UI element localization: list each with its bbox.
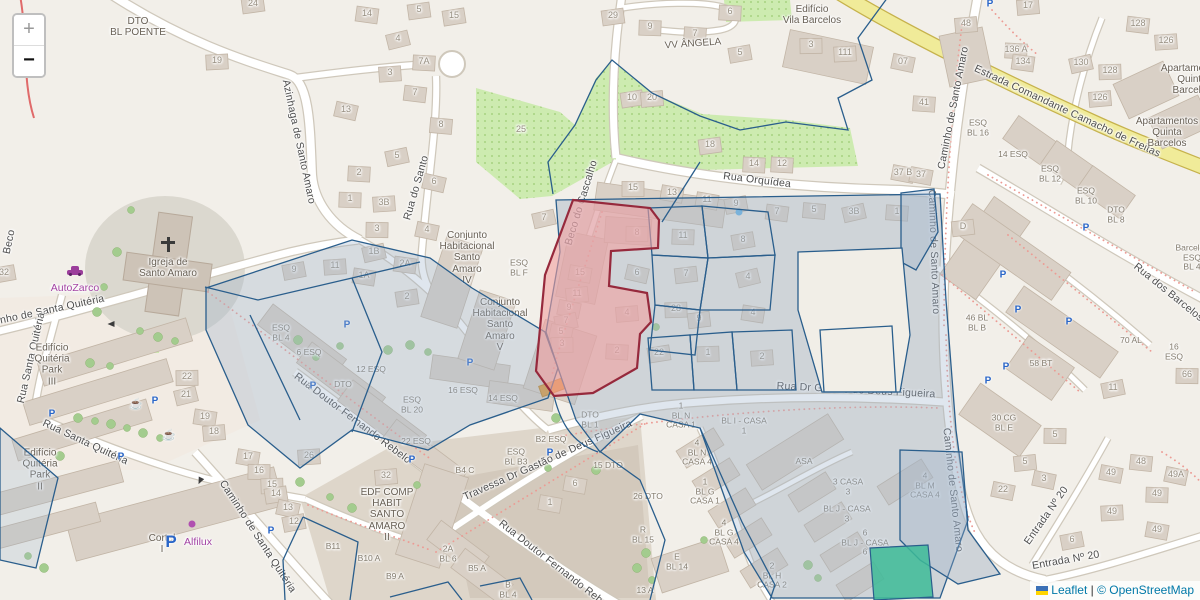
housenumber-label: 3 — [387, 67, 392, 77]
parking-icon: P — [165, 532, 176, 552]
place-label: B10 A — [358, 554, 381, 564]
parking-icon: P — [1066, 317, 1073, 328]
zoom-out-button[interactable]: − — [14, 46, 44, 76]
parking-icon: P — [1003, 362, 1010, 373]
poi-label: Alfilux — [184, 537, 212, 549]
place-label: Edifício Quitéria Park III — [34, 343, 69, 388]
housenumber-label: 6 — [634, 267, 639, 277]
place-label: ESQ BL B3 — [505, 447, 528, 466]
housenumber-label: 5 — [1052, 429, 1057, 439]
housenumber-label: 25 — [516, 124, 526, 134]
street-label: Rua do Santo — [402, 154, 432, 221]
parking-icon: P — [409, 455, 416, 466]
car-icon — [67, 266, 83, 276]
place-label: ESQ BL F — [510, 258, 528, 277]
street-label: Rua Orquídea — [722, 171, 791, 191]
housenumber-label: 41 — [919, 97, 929, 107]
place-label: 16 ESQ — [1161, 342, 1187, 361]
place-label: ESQ BL 4 — [272, 323, 290, 342]
street-label: Estrada Comandante Camacho de Freitas — [972, 64, 1162, 161]
housenumber-label: 22 — [654, 347, 664, 357]
housenumber-label: 66 — [1182, 369, 1192, 379]
place-label: B9 A — [386, 572, 404, 582]
housenumber-label: 17 — [243, 451, 253, 461]
place-label: 15 DTO — [593, 461, 623, 471]
housenumber-label: 3 — [808, 39, 813, 49]
place-label: 26 DTO — [633, 492, 663, 502]
housenumber-label: 24 — [248, 0, 258, 8]
place-label: 13 A — [636, 586, 653, 596]
place-label: DTO BL 8 — [1107, 205, 1125, 224]
parking-icon: P — [268, 526, 275, 537]
housenumber-label: 130 — [1073, 57, 1088, 67]
cafe-icon: ☕ — [129, 398, 143, 411]
parking-icon: P — [118, 452, 125, 463]
osm-link[interactable]: © OpenStreetMap — [1097, 583, 1194, 597]
place-label: EDF COMP HABIT SANTO AMARO II — [361, 487, 414, 543]
housenumber-label: 18 — [705, 139, 715, 149]
parking-icon: P — [1015, 305, 1022, 316]
street-label: Rua Dr Gastão de Deus Figueira — [776, 381, 935, 401]
place-label: Igreja de Santo Amaro — [139, 257, 197, 279]
place-label: Conjunto Habitacional Santo Amaro IV — [439, 230, 494, 286]
housenumber-label: 5 — [416, 4, 421, 14]
place-label: BL I - CASA 1 — [721, 416, 767, 435]
housenumber-label: 07 — [898, 56, 908, 66]
map-canvas[interactable]: BecoAzinhaga de Santo AmaroRua do SantoB… — [0, 0, 1200, 600]
housenumber-label: 6 — [431, 176, 436, 186]
housenumber-label: 7 — [683, 268, 688, 278]
housenumber-label: 49 — [1107, 506, 1117, 516]
housenumber-label: 2 — [614, 345, 619, 355]
housenumber-label: 51 — [852, 359, 862, 369]
housenumber-label: 4 — [424, 224, 429, 234]
street-label: Caminho de Santo Amaro — [936, 46, 971, 171]
housenumber-label: 27 — [851, 304, 861, 314]
place-label: 1 BL G CASA 1 — [690, 478, 720, 507]
street-label: Caminho de Santo Amaro — [940, 427, 965, 552]
housenumber-label: 3B — [378, 197, 389, 207]
housenumber-label: 17 — [1023, 0, 1033, 10]
parking-icon: P — [152, 396, 159, 407]
place-label: ASA — [795, 457, 812, 467]
housenumber-label: 19 — [212, 55, 222, 65]
cafe-icon: ☕ — [162, 429, 176, 442]
attribution-separator: | — [1091, 583, 1094, 597]
map-labels-layer: BecoAzinhaga de Santo AmaroRua do SantoB… — [0, 0, 1200, 600]
parking-icon: P — [547, 448, 554, 459]
housenumber-label: 37 B — [894, 167, 913, 177]
housenumber-label: 1 — [347, 193, 352, 203]
housenumber-label: 11 — [1108, 382, 1117, 392]
place-label: BL J - CASA 3 — [823, 504, 870, 523]
housenumber-label: 5 — [558, 326, 563, 336]
housenumber-label: 4 — [624, 307, 629, 317]
place-label: VV ÂNGELA — [664, 36, 721, 51]
oneway-arrow-icon — [108, 321, 115, 327]
street-label: Caminho de Santo Amaro — [925, 190, 941, 315]
place-label: Edifício Quitéria Park II — [22, 448, 57, 493]
place-label: Barcelos ESQ BL 4 — [1175, 244, 1200, 273]
housenumber-label: 9 — [647, 21, 652, 31]
housenumber-label: 2 — [759, 351, 764, 361]
place-label: B BL 4 — [499, 580, 516, 599]
housenumber-label: D — [960, 221, 967, 231]
housenumber-label: 9 — [291, 264, 296, 274]
housenumber-label: 27 — [857, 276, 867, 286]
place-label: E BL 14 — [666, 552, 688, 571]
place-label: ESQ BL 10 — [1075, 186, 1097, 205]
housenumber-label: 4 — [395, 33, 400, 43]
housenumber-label: 126 — [1158, 35, 1173, 45]
housenumber-label: 8 — [634, 227, 639, 237]
housenumber-label: 1 — [705, 347, 710, 357]
place-label: 1 BL N CASA 1 — [666, 402, 696, 431]
housenumber-label: 6 — [1069, 534, 1074, 544]
place-label: Apartamentos Quinta Barcelos — [1161, 63, 1200, 97]
housenumber-label: 48 — [961, 18, 971, 28]
housenumber-label: 26 — [304, 450, 314, 460]
housenumber-label: 8 — [438, 119, 443, 129]
shop-dot-icon — [189, 521, 196, 528]
attribution-bar: Leaflet | © OpenStreetMap — [1030, 581, 1200, 600]
housenumber-label: 9 — [566, 302, 571, 312]
place-label: 30 CG BL E — [992, 413, 1017, 432]
street-label: Beco do Cascalho — [563, 159, 600, 247]
place-label: Apartamentos Quinta Barcelos — [1136, 116, 1198, 150]
housenumber-label: 37 — [916, 169, 926, 179]
housenumber-label: 7A — [418, 56, 429, 66]
place-label: 16 ESQ — [448, 386, 478, 396]
housenumber-label: 13 — [283, 502, 293, 512]
housenumber-label: 6 — [572, 478, 577, 488]
housenumber-label: 7 — [412, 87, 417, 97]
housenumber-label: 134 — [1015, 56, 1030, 66]
housenumber-label: 18 — [209, 426, 219, 436]
street-label: Beco — [2, 229, 19, 256]
housenumber-label: 5 — [1022, 456, 1027, 466]
housenumber-label: 8 — [740, 234, 745, 244]
housenumber-label: 7 — [774, 206, 779, 216]
housenumber-label: 4 — [745, 271, 750, 281]
housenumber-label: 32 — [381, 470, 391, 480]
housenumber-label: 16 — [254, 465, 264, 475]
housenumber-label: 21 — [181, 389, 191, 399]
place-label: 22 ESQ — [401, 437, 431, 447]
housenumber-label: 14 — [749, 158, 759, 168]
housenumber-label: 22 — [998, 484, 1008, 494]
zoom-control: + − — [12, 13, 46, 78]
place-label: 3 CASA 3 — [833, 477, 863, 496]
housenumber-label: 4 — [750, 307, 755, 317]
housenumber-label: 3 — [374, 223, 379, 233]
housenumber-label: 12 — [289, 516, 299, 526]
place-label: 4 BL G CASA 4 — [709, 519, 739, 548]
place-label: 6 BL J - CASA 6 — [841, 529, 888, 558]
housenumber-label: 22 — [182, 371, 192, 381]
housenumber-label: 2A — [399, 258, 410, 268]
housenumber-label: 128 — [1102, 65, 1117, 75]
housenumber-label: 126 — [1092, 92, 1107, 102]
poi-label: AutoZarco — [51, 283, 99, 295]
place-label: Edifício Vila Barcelos — [783, 4, 841, 26]
zoom-in-button[interactable]: + — [14, 15, 44, 46]
place-label: DTO BL POENTE — [110, 16, 166, 38]
place-label: B2 ESQ — [536, 435, 567, 445]
place-label: R BL 15 — [632, 525, 654, 544]
housenumber-label: 10 — [627, 92, 637, 102]
housenumber-label: 2 — [356, 167, 361, 177]
housenumber-label: 128 — [1130, 18, 1145, 28]
housenumber-label: 1 — [894, 206, 899, 216]
street-label: Entrada Nº 20 — [1023, 485, 1072, 548]
place-label: 46 BL BL B — [966, 313, 988, 332]
church-cross-icon — [161, 237, 175, 253]
place-label: DTO BL 1 — [581, 410, 599, 429]
housenumber-label: 6 — [727, 6, 732, 16]
leaflet-link[interactable]: Leaflet — [1051, 583, 1087, 597]
housenumber-label: 3B — [848, 206, 859, 216]
place-label: ESQ BL 20 — [401, 395, 423, 414]
housenumber-label: 3 — [559, 338, 564, 348]
housenumber-label: 3 — [1041, 473, 1046, 483]
housenumber-label: 12 — [777, 158, 787, 168]
housenumber-label: 20 — [647, 92, 657, 102]
place-label: 2 BL H CASA 2 — [757, 562, 787, 591]
street-label: Azinhaga de Santo Amaro — [279, 79, 317, 205]
housenumber-label: 1B — [368, 246, 379, 256]
housenumber-label: 111 — [838, 47, 852, 57]
place-label: 58 BT — [1030, 359, 1053, 369]
place-label: 6 ESQ — [296, 348, 321, 358]
place-label: 14 ESQ — [488, 394, 518, 404]
place-label: B4 C — [456, 466, 475, 476]
parking-icon: P — [1083, 223, 1090, 234]
housenumber-label: 136 A — [1004, 44, 1027, 54]
housenumber-label: 1A — [358, 270, 369, 280]
parking-icon: P — [467, 358, 474, 369]
housenumber-label: 13 — [667, 187, 677, 197]
housenumber-label: 15 — [449, 10, 459, 20]
housenumber-label: 29 — [608, 10, 618, 20]
housenumber-label: 49 — [1152, 488, 1162, 498]
place-label: 12 ESQ — [356, 365, 386, 375]
place-label: 4 BL M CASA 4 — [910, 472, 940, 501]
place-label: DTO — [334, 380, 352, 390]
parking-icon: P — [1000, 270, 1007, 281]
housenumber-label: 11 — [678, 230, 687, 240]
parking-icon: P — [310, 381, 317, 392]
place-label: 14 ESQ — [998, 150, 1028, 160]
housenumber-label: 15 — [628, 182, 638, 192]
housenumber-label: 19 — [200, 411, 210, 421]
housenumber-label: 13 — [341, 104, 351, 114]
housenumber-label: 9 — [733, 198, 738, 208]
housenumber-label: 5 — [394, 150, 399, 160]
housenumber-label: 11 — [572, 288, 581, 298]
parking-icon: P — [987, 0, 994, 10]
place-label: 70 AL — [1120, 336, 1142, 346]
leaflet-flag-icon — [1036, 586, 1048, 595]
place-label: 4 BL N CASA 4 — [682, 439, 712, 468]
place-label: Conjunto Habitacional Santo Amaro V — [472, 297, 527, 353]
housenumber-label: 1 — [547, 497, 552, 507]
housenumber-label: 11 — [702, 194, 711, 204]
housenumber-label: 7 — [541, 212, 546, 222]
housenumber-label: 15 — [575, 267, 585, 277]
place-label: B11 — [326, 542, 341, 552]
place-label: B5 A — [468, 564, 486, 574]
housenumber-label: 28 — [671, 303, 681, 313]
housenumber-label: 9 — [696, 313, 701, 323]
housenumber-label: 49A — [1168, 469, 1184, 479]
housenumber-label: 11 — [330, 260, 339, 270]
housenumber-label: 5 — [811, 204, 816, 214]
housenumber-label: 7 — [563, 315, 568, 325]
housenumber-label: 49 — [1106, 467, 1116, 477]
oneway-arrow-icon — [196, 477, 204, 486]
housenumber-label: 7 — [692, 28, 697, 38]
place-label: 2A BL 6 — [439, 544, 456, 563]
housenumber-label: 14 — [362, 8, 372, 18]
parking-icon: P — [49, 409, 56, 420]
housenumber-label: 2 — [404, 291, 409, 301]
parking-icon: P — [985, 376, 992, 387]
street-label: Entrada Nº 20 — [1031, 549, 1100, 572]
place-label: ESQ BL 12 — [1039, 164, 1061, 183]
housenumber-label: 48 — [1136, 456, 1146, 466]
parking-icon: P — [344, 320, 351, 331]
housenumber-label: 14 — [271, 488, 281, 498]
housenumber-label: 32 — [0, 267, 9, 277]
street-label: Caminho de Santa Quitéria — [216, 479, 298, 596]
street-label: Caminho de Santa Quitéria — [0, 294, 106, 333]
water-dot-icon — [736, 209, 743, 216]
housenumber-label: 5 — [737, 47, 742, 57]
place-label: ESQ BL 16 — [967, 118, 989, 137]
housenumber-label: 49 — [1152, 524, 1162, 534]
